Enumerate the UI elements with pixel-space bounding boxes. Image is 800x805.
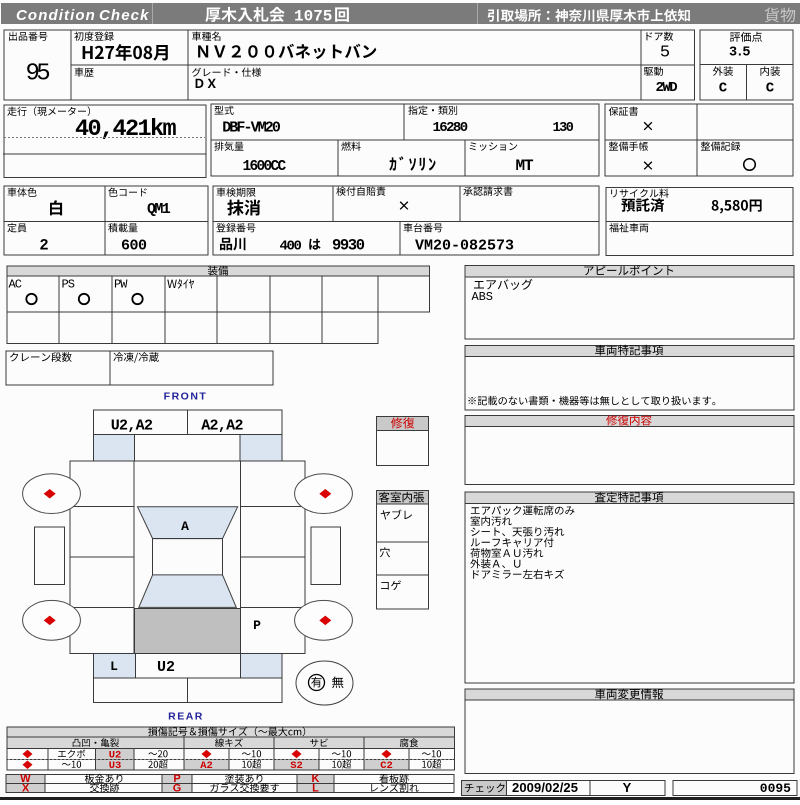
svg-text:QM1: QM1 [147,201,171,218]
svg-text:40,421km: 40,421km [75,116,177,143]
svg-text:FRONT: FRONT [164,391,208,403]
svg-text:P: P [253,618,261,633]
svg-text:L: L [312,782,319,794]
svg-text:Y: Y [623,780,632,795]
svg-text:U2: U2 [157,659,175,676]
svg-text:C: C [766,81,775,97]
svg-text:3.5: 3.5 [729,46,750,61]
svg-text:2WD: 2WD [656,80,678,96]
svg-text:1600CC: 1600CC [243,159,287,175]
svg-text:9930: 9930 [332,237,365,255]
svg-text:AC: AC [9,278,22,292]
svg-text:Condition: Condition [16,7,96,24]
svg-text:A2,A2: A2,A2 [201,418,243,435]
svg-text:400: 400 [280,239,302,255]
svg-text:S2: S2 [290,760,303,772]
svg-text:C2: C2 [380,760,393,772]
svg-text:130: 130 [553,121,574,136]
svg-text:600: 600 [121,238,147,255]
svg-text:2009/02/25: 2009/02/25 [512,780,578,795]
svg-text:X: X [22,782,30,794]
svg-text:DBF-VM20: DBF-VM20 [222,120,281,137]
svg-text:PW: PW [114,278,128,292]
svg-text:Check: Check [99,7,150,24]
svg-text:95: 95 [26,61,50,88]
svg-text:REAR: REAR [168,711,204,723]
svg-text:C: C [719,81,728,97]
svg-text:A: A [181,519,189,534]
svg-text:ABS: ABS [472,290,493,304]
svg-text:VM20-082573: VM20-082573 [415,238,514,255]
svg-text:16280: 16280 [433,120,468,136]
svg-text:L: L [110,659,118,674]
svg-text:MT: MT [516,157,535,175]
svg-text:0095: 0095 [760,781,791,796]
svg-text:A2: A2 [200,760,213,772]
svg-text:U2,A2: U2,A2 [111,418,153,435]
svg-text:PS: PS [62,278,75,292]
svg-text:1075: 1075 [294,8,332,26]
svg-text:G: G [173,782,182,794]
svg-text:U3: U3 [109,760,122,772]
svg-text:5: 5 [660,44,670,63]
svg-text:2: 2 [39,237,48,255]
